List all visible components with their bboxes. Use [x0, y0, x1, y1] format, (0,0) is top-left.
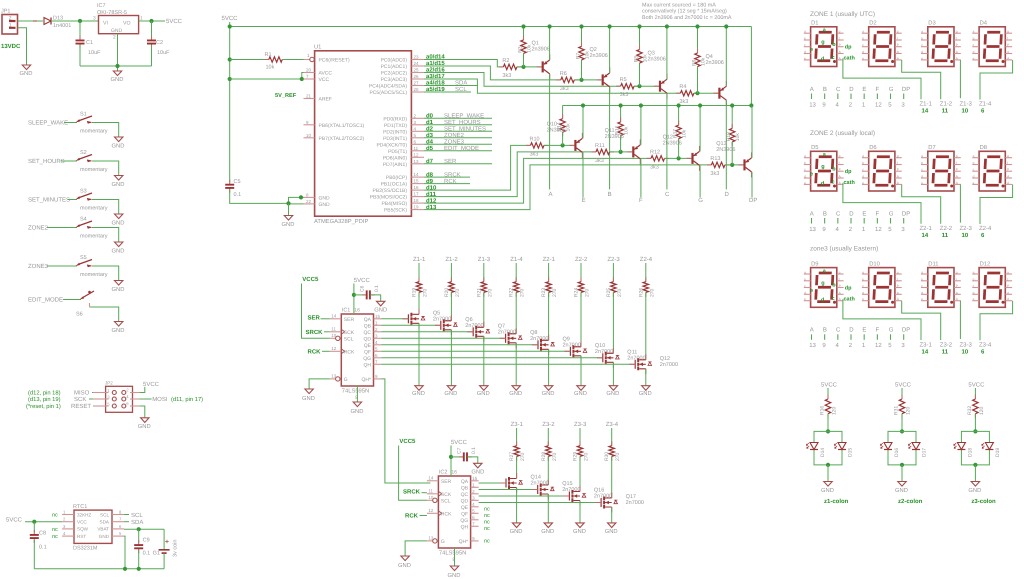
- svg-text:3k3: 3k3: [650, 164, 659, 170]
- svg-text:16: 16: [354, 308, 360, 314]
- svg-text:7: 7: [306, 74, 309, 79]
- svg-text:D17: D17: [922, 448, 928, 457]
- svg-text:F: F: [876, 210, 880, 217]
- svg-text:d: d: [821, 297, 824, 303]
- svg-text:QF: QF: [364, 349, 371, 355]
- svg-text:25: 25: [414, 68, 420, 73]
- svg-text:PD7(AIN1): PD7(AIN1): [383, 162, 408, 168]
- svg-text:R5: R5: [620, 77, 627, 83]
- svg-text:R19: R19: [412, 288, 418, 297]
- svg-text:10k: 10k: [624, 126, 630, 135]
- svg-text:GND: GND: [138, 423, 151, 430]
- svg-text:3: 3: [414, 120, 417, 125]
- svg-text:12: 12: [428, 508, 434, 513]
- svg-text:D12: D12: [980, 260, 991, 267]
- svg-text:12: 12: [875, 226, 882, 233]
- svg-text:2N3906: 2N3906: [663, 140, 682, 146]
- svg-text:23: 23: [414, 55, 420, 60]
- svg-text:c: c: [832, 296, 835, 302]
- svg-text:g: g: [897, 271, 899, 275]
- svg-text:e: e: [921, 297, 923, 301]
- svg-text:SET_MINUTES: SET_MINUTES: [444, 125, 486, 132]
- svg-text:PB0(ICP): PB0(ICP): [386, 175, 407, 181]
- svg-text:E: E: [862, 327, 866, 334]
- svg-text:GND: GND: [639, 390, 652, 397]
- svg-text:PB1(OC1A): PB1(OC1A): [381, 182, 408, 188]
- svg-text:QA: QA: [461, 479, 469, 485]
- svg-text:GND: GND: [282, 221, 295, 228]
- svg-text:PC0(ADC0): PC0(ADC0): [381, 58, 408, 64]
- svg-text:S1: S1: [80, 112, 87, 118]
- svg-text:Z3-2: Z3-2: [940, 341, 953, 348]
- svg-text:dp: dp: [845, 285, 852, 291]
- svg-text:14: 14: [428, 475, 434, 480]
- svg-text:SER: SER: [308, 315, 321, 322]
- svg-text:14: 14: [331, 313, 337, 318]
- svg-text:1: 1: [862, 342, 866, 349]
- svg-text:F: F: [876, 86, 880, 93]
- svg-text:d2: d2: [426, 126, 434, 133]
- svg-text:3k3: 3k3: [502, 73, 511, 79]
- svg-text:10: 10: [962, 348, 969, 355]
- svg-text:Z1-4: Z1-4: [979, 101, 992, 108]
- svg-text:RCK: RCK: [405, 513, 419, 520]
- svg-text:GND: GND: [112, 181, 125, 188]
- svg-text:G: G: [698, 197, 703, 204]
- svg-text:DS3231M: DS3231M: [73, 546, 98, 552]
- svg-text:2n3906: 2n3906: [532, 47, 550, 53]
- svg-text:GND: GND: [821, 487, 834, 494]
- svg-text:b: b: [973, 161, 975, 165]
- svg-text:B: B: [608, 191, 612, 198]
- svg-text:G: G: [441, 539, 445, 545]
- svg-text:4: 4: [375, 340, 378, 345]
- svg-text:a: a: [862, 30, 864, 34]
- svg-text:VCC5: VCC5: [399, 438, 416, 445]
- svg-text:GND: GND: [112, 327, 125, 334]
- svg-text:QH: QH: [364, 362, 372, 368]
- svg-text:f: f: [956, 37, 957, 41]
- svg-text:GND: GND: [606, 390, 619, 397]
- svg-text:11: 11: [331, 326, 336, 331]
- svg-text:SLEEP_WAKE: SLEEP_WAKE: [28, 120, 68, 127]
- svg-text:dp: dp: [845, 169, 852, 175]
- svg-text:R10: R10: [530, 136, 540, 142]
- svg-text:R6: R6: [560, 71, 567, 77]
- svg-text:2: 2: [9, 16, 12, 22]
- svg-text:S5: S5: [80, 255, 87, 261]
- svg-text:1: 1: [472, 482, 475, 487]
- svg-text:PB5(SCK): PB5(SCK): [384, 208, 407, 214]
- svg-text:270: 270: [584, 452, 590, 461]
- svg-text:SDA: SDA: [455, 80, 467, 87]
- svg-text:d8: d8: [426, 171, 434, 178]
- svg-text:R31: R31: [894, 406, 900, 415]
- svg-text:P: P: [897, 284, 899, 288]
- svg-text:Z2-3: Z2-3: [607, 256, 620, 263]
- svg-text:d: d: [821, 181, 824, 187]
- svg-text:2n7000: 2n7000: [531, 481, 549, 487]
- svg-text:SQW: SQW: [77, 527, 89, 532]
- svg-text:g: g: [897, 154, 899, 158]
- svg-text:10: 10: [962, 232, 969, 239]
- svg-text:d12: d12: [426, 197, 437, 204]
- svg-text:D3: D3: [928, 20, 935, 27]
- svg-text:e: e: [804, 297, 806, 301]
- svg-text:2N3906: 2N3906: [547, 127, 566, 133]
- svg-text:b: b: [862, 161, 864, 165]
- svg-text:g: g: [821, 164, 824, 170]
- svg-text:4: 4: [126, 394, 129, 399]
- svg-text:nc: nc: [484, 538, 490, 544]
- svg-text:F: F: [876, 327, 880, 334]
- svg-text:R30: R30: [604, 452, 610, 461]
- svg-text:conservatively (12 seg * 15mA/: conservatively (12 seg * 15mA/seg): [642, 9, 727, 15]
- svg-text:b: b: [832, 283, 836, 289]
- svg-text:d: d: [821, 57, 824, 63]
- svg-text:a: a: [862, 271, 864, 275]
- svg-text:D2: D2: [869, 20, 876, 27]
- svg-text:2: 2: [472, 489, 475, 494]
- svg-text:zone3 (usually Eastern): zone3 (usually Eastern): [810, 246, 878, 253]
- svg-text:Max current sourced = 180 mA: Max current sourced = 180 mA: [642, 3, 716, 9]
- svg-text:d5: d5: [426, 145, 434, 152]
- svg-text:PD1(TXD): PD1(TXD): [384, 123, 407, 129]
- svg-text:2n7000: 2n7000: [660, 362, 678, 368]
- svg-text:VCC: VCC: [319, 77, 330, 83]
- svg-text:P: P: [839, 284, 841, 288]
- svg-text:e: e: [862, 56, 864, 60]
- svg-text:Z2-2: Z2-2: [940, 225, 953, 232]
- svg-text:d: d: [973, 291, 975, 295]
- svg-text:GND: GND: [20, 70, 33, 77]
- svg-text:g: g: [1007, 154, 1009, 158]
- svg-text:QC: QC: [364, 330, 372, 336]
- svg-text:2n3906: 2n3906: [590, 53, 608, 59]
- svg-text:d9: d9: [426, 178, 434, 185]
- svg-text:f: f: [956, 277, 957, 281]
- svg-text:a: a: [804, 30, 806, 34]
- svg-text:g: g: [956, 271, 958, 275]
- svg-text:16: 16: [451, 470, 457, 476]
- svg-text:GND: GND: [111, 28, 123, 34]
- svg-text:1n4001: 1n4001: [53, 23, 71, 29]
- svg-text:GND: GND: [542, 390, 555, 397]
- svg-text:3: 3: [93, 16, 96, 22]
- svg-text:E: E: [862, 86, 866, 93]
- svg-text:9: 9: [472, 536, 475, 541]
- svg-text:13: 13: [428, 535, 434, 540]
- svg-text:VCC5: VCC5: [302, 276, 319, 283]
- svg-text:d7: d7: [426, 158, 434, 165]
- svg-text:e: e: [973, 56, 975, 60]
- svg-text:13: 13: [331, 373, 337, 378]
- svg-text:GND: GND: [895, 487, 908, 494]
- svg-text:d4: d4: [426, 139, 434, 146]
- svg-text:f: f: [897, 277, 898, 281]
- svg-text:IC7: IC7: [97, 3, 106, 9]
- svg-text:C1: C1: [86, 40, 93, 46]
- svg-text:5: 5: [472, 508, 475, 513]
- svg-text:ZONE3: ZONE3: [28, 263, 49, 270]
- svg-text:a2/d16: a2/d16: [426, 67, 445, 74]
- svg-text:26: 26: [414, 74, 420, 79]
- svg-text:5VCC: 5VCC: [968, 382, 985, 389]
- svg-text:GND: GND: [99, 534, 110, 539]
- svg-text:2n7000: 2n7000: [562, 487, 580, 493]
- svg-text:D10: D10: [869, 260, 880, 267]
- svg-text:e: e: [804, 181, 806, 185]
- svg-text:R16: R16: [820, 406, 826, 415]
- svg-text:22: 22: [306, 199, 312, 204]
- svg-text:QH: QH: [461, 524, 469, 530]
- svg-text:G: G: [889, 210, 894, 217]
- svg-text:d10: d10: [426, 184, 437, 191]
- svg-text:C: C: [836, 210, 841, 217]
- svg-text:PB4(MISO): PB4(MISO): [381, 201, 407, 207]
- svg-text:R23: R23: [541, 288, 547, 297]
- svg-text:g: g: [1007, 30, 1009, 34]
- svg-text:a: a: [862, 154, 864, 158]
- svg-text:f: f: [1007, 277, 1008, 281]
- svg-text:f: f: [839, 277, 840, 281]
- svg-text:PB6(XTAL1/TOSC1): PB6(XTAL1/TOSC1): [319, 123, 365, 129]
- svg-text:PC4(ADC4/SDA): PC4(ADC4/SDA): [369, 84, 407, 90]
- svg-text:ZONE3: ZONE3: [444, 138, 465, 145]
- svg-text:120: 120: [979, 406, 985, 415]
- svg-text:a0/d14: a0/d14: [426, 54, 445, 61]
- svg-text:1: 1: [307, 53, 310, 58]
- svg-text:5VCC: 5VCC: [451, 439, 468, 446]
- svg-text:R24: R24: [574, 288, 580, 297]
- svg-text:270: 270: [617, 288, 623, 297]
- svg-text:7: 7: [375, 359, 378, 364]
- svg-text:1: 1: [862, 101, 866, 108]
- svg-text:12: 12: [875, 342, 882, 349]
- svg-text:b: b: [804, 161, 806, 165]
- svg-text:QG: QG: [363, 356, 371, 362]
- svg-text:RESET: RESET: [71, 403, 91, 410]
- svg-text:D: D: [725, 191, 730, 198]
- svg-text:a: a: [804, 154, 806, 158]
- svg-text:15: 15: [414, 179, 420, 184]
- svg-text:C5: C5: [234, 179, 241, 185]
- svg-text:GND: GND: [374, 307, 387, 314]
- svg-text:10: 10: [331, 333, 337, 338]
- svg-text:Both 2n3906 and 2n7000 Ic = 20: Both 2n3906 and 2n7000 Ic = 200mA: [642, 15, 732, 21]
- svg-text:14: 14: [414, 172, 420, 177]
- svg-text:Z1-2: Z1-2: [940, 101, 953, 108]
- svg-text:nc: nc: [484, 526, 490, 532]
- svg-text:Z2-3: Z2-3: [960, 225, 973, 232]
- svg-text:D9: D9: [811, 260, 818, 267]
- svg-text:10k: 10k: [682, 129, 688, 138]
- svg-text:GND: GND: [510, 528, 523, 535]
- svg-text:ZONE 2 (usually local): ZONE 2 (usually local): [810, 130, 875, 137]
- svg-text:14: 14: [922, 232, 929, 239]
- svg-text:f: f: [1007, 37, 1008, 41]
- svg-text:GND: GND: [509, 390, 522, 397]
- svg-text:R32: R32: [967, 406, 973, 415]
- svg-text:GND: GND: [412, 390, 425, 397]
- svg-text:9: 9: [822, 342, 826, 349]
- svg-text:e: e: [804, 56, 806, 60]
- svg-text:B: B: [823, 210, 827, 217]
- svg-text:D5: D5: [811, 145, 818, 151]
- svg-text:QB: QB: [364, 323, 372, 329]
- svg-text:QH*: QH*: [459, 539, 469, 545]
- svg-text:R29: R29: [573, 452, 579, 461]
- svg-text:a: a: [921, 271, 923, 275]
- svg-text:f: f: [956, 161, 957, 165]
- svg-text:D15: D15: [848, 448, 854, 457]
- svg-text:270: 270: [552, 452, 558, 461]
- svg-text:3k3: 3k3: [620, 92, 629, 98]
- svg-text:U1: U1: [314, 45, 321, 51]
- svg-text:QB: QB: [461, 485, 469, 491]
- svg-text:3: 3: [63, 524, 66, 529]
- svg-text:g: g: [839, 271, 841, 275]
- svg-text:8: 8: [119, 510, 122, 515]
- svg-text:D11: D11: [928, 261, 938, 267]
- svg-text:SCK: SCK: [74, 396, 86, 403]
- svg-text:P: P: [1007, 168, 1009, 172]
- svg-text:270: 270: [520, 452, 526, 461]
- svg-text:G: G: [889, 327, 894, 334]
- svg-text:GND: GND: [112, 248, 125, 255]
- svg-text:10: 10: [428, 495, 434, 500]
- svg-text:b: b: [862, 37, 864, 41]
- svg-text:a4/d18: a4/d18: [426, 80, 445, 87]
- svg-text:P: P: [897, 168, 899, 172]
- svg-text:18: 18: [414, 198, 420, 203]
- svg-text:2n7000: 2n7000: [433, 316, 451, 322]
- svg-text:e: e: [810, 172, 813, 178]
- svg-text:D19: D19: [995, 448, 1001, 457]
- svg-text:2: 2: [414, 113, 417, 118]
- svg-text:5VCC: 5VCC: [222, 15, 239, 22]
- svg-text:9: 9: [306, 120, 309, 125]
- svg-text:SCL: SCL: [131, 512, 143, 519]
- svg-text:2: 2: [849, 342, 853, 349]
- svg-text:R25: R25: [606, 288, 612, 297]
- svg-text:g: g: [821, 40, 824, 46]
- svg-text:9: 9: [822, 226, 826, 233]
- svg-text:D: D: [849, 86, 854, 93]
- svg-text:Z1-1: Z1-1: [413, 256, 426, 263]
- svg-text:QF: QF: [461, 511, 468, 517]
- svg-text:(d12, pin 18): (d12, pin 18): [28, 390, 61, 397]
- svg-text:d: d: [921, 291, 923, 295]
- svg-text:SET_MINUTES: SET_MINUTES: [28, 197, 70, 204]
- svg-text:e: e: [810, 47, 813, 53]
- svg-text:SDA: SDA: [100, 520, 110, 525]
- svg-text:g: g: [839, 154, 841, 158]
- svg-text:GND: GND: [302, 395, 315, 402]
- svg-text:S3: S3: [80, 189, 87, 195]
- svg-text:1: 1: [862, 226, 866, 233]
- svg-text:R3: R3: [518, 46, 524, 53]
- svg-text:OKI-78SR-5: OKI-78SR-5: [97, 10, 127, 16]
- svg-text:a: a: [973, 271, 975, 275]
- svg-text:24: 24: [414, 61, 420, 66]
- svg-text:C9: C9: [143, 538, 150, 544]
- svg-text:GND: GND: [112, 143, 125, 150]
- svg-text:d: d: [973, 175, 975, 179]
- svg-text:SET_HOURS: SET_HOURS: [28, 158, 65, 165]
- svg-text:17: 17: [414, 192, 420, 197]
- svg-text:Z1-1: Z1-1: [920, 101, 933, 108]
- svg-text:6: 6: [119, 524, 122, 529]
- svg-text:momentary: momentary: [80, 272, 108, 278]
- svg-text:R27: R27: [509, 452, 515, 461]
- svg-text:D8: D8: [980, 144, 987, 151]
- svg-text:SCL: SCL: [441, 498, 451, 504]
- svg-text:z3-colon: z3-colon: [971, 498, 996, 505]
- svg-text:R17: R17: [673, 129, 679, 138]
- svg-text:g: g: [897, 30, 899, 34]
- svg-text:P: P: [897, 43, 899, 47]
- svg-text:2n7000: 2n7000: [626, 500, 644, 506]
- svg-text:R21: R21: [476, 288, 482, 297]
- svg-text:SCK: SCK: [344, 330, 355, 336]
- svg-text:GND: GND: [541, 528, 554, 535]
- svg-text:RTC1: RTC1: [73, 504, 87, 510]
- svg-text:270: 270: [615, 452, 621, 461]
- svg-text:5: 5: [375, 346, 378, 351]
- svg-text:D18: D18: [967, 448, 973, 457]
- svg-text:6: 6: [981, 348, 985, 355]
- svg-text:D14: D14: [820, 448, 826, 457]
- svg-text:2n7000: 2n7000: [498, 329, 516, 335]
- svg-text:g: g: [821, 281, 824, 287]
- svg-text:VI: VI: [103, 21, 108, 27]
- svg-text:3: 3: [901, 101, 905, 108]
- svg-text:VBAT: VBAT: [97, 527, 109, 532]
- svg-text:PC6(/RESET): PC6(/RESET): [319, 58, 350, 64]
- svg-text:QE: QE: [461, 505, 469, 511]
- svg-text:5: 5: [414, 133, 417, 138]
- svg-text:PD3(INT1): PD3(INT1): [383, 136, 407, 142]
- svg-text:GND: GND: [574, 390, 587, 397]
- svg-text:5VCC: 5VCC: [6, 517, 23, 524]
- svg-text:1: 1: [375, 320, 378, 325]
- svg-text:nc: nc: [52, 534, 58, 540]
- svg-text:PD0(RXD): PD0(RXD): [383, 116, 407, 122]
- svg-text:b: b: [921, 161, 923, 165]
- svg-text:a1/d15: a1/d15: [426, 60, 445, 67]
- svg-text:8: 8: [306, 192, 309, 197]
- svg-text:A: A: [810, 327, 814, 334]
- svg-text:F: F: [639, 197, 643, 204]
- svg-text:d: d: [921, 175, 923, 179]
- svg-text:GND: GND: [111, 76, 124, 83]
- svg-text:ZONE2: ZONE2: [444, 132, 465, 139]
- svg-text:d11: d11: [426, 191, 437, 198]
- svg-text:4: 4: [836, 101, 840, 108]
- svg-text:R12: R12: [650, 149, 660, 155]
- svg-text:momentary: momentary: [80, 234, 108, 240]
- svg-text:PB7(XTAL2/TOSC2): PB7(XTAL2/TOSC2): [319, 136, 365, 142]
- svg-text:f: f: [1007, 161, 1008, 165]
- svg-text:Z3-4: Z3-4: [979, 341, 992, 348]
- svg-text:nc: nc: [52, 527, 58, 533]
- svg-text:cath: cath: [844, 297, 856, 303]
- svg-text:2: 2: [63, 517, 66, 522]
- svg-text:2N3906: 2N3906: [605, 134, 624, 140]
- svg-text:Z2-4: Z2-4: [640, 256, 653, 263]
- svg-text:z2-colon: z2-colon: [898, 498, 923, 505]
